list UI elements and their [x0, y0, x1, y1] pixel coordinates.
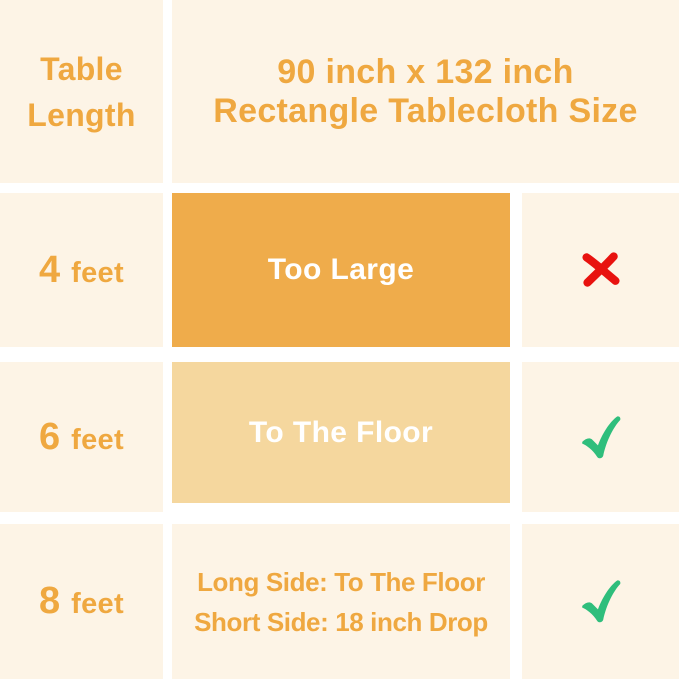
too-large-label: Too Large: [268, 253, 414, 287]
size-title-line2: Rectangle Tablecloth Size: [213, 92, 637, 131]
row-4ft-length-cell: 4 feet: [0, 193, 163, 347]
too-large-box: Too Large: [172, 193, 510, 347]
row-8ft-fit-line1: Long Side: To The Floor: [197, 562, 485, 602]
to-the-floor-box: To The Floor: [172, 362, 510, 503]
row-6ft-length: 6 feet: [39, 416, 124, 459]
row-4ft-verdict-cell: [522, 193, 679, 347]
row-8ft-fit-line2: Short Side: 18 inch Drop: [194, 602, 488, 642]
table-length-label: Table Length: [12, 46, 152, 138]
row-6ft-length-unit: feet: [71, 424, 124, 457]
row-8ft-verdict-cell: [522, 524, 679, 679]
tablecloth-size-table: Table Length 90 inch x 132 inch Rectangl…: [0, 0, 679, 679]
size-title-line1: 90 inch x 132 inch: [277, 53, 573, 92]
row-4ft-fit-cell: Too Large: [172, 193, 510, 347]
cross-icon: [580, 251, 622, 289]
row-4ft-length-number: 4: [39, 249, 60, 292]
row-8ft-length-number: 8: [39, 580, 60, 623]
check-icon: [577, 411, 625, 464]
header-table-length-cell: Table Length: [0, 0, 163, 183]
row-6ft-length-number: 6: [39, 416, 60, 459]
row-6ft-length-cell: 6 feet: [0, 362, 163, 512]
header-size-title-cell: 90 inch x 132 inch Rectangle Tablecloth …: [172, 0, 679, 183]
row-8ft-fit-cell: Long Side: To The Floor Short Side: 18 i…: [172, 524, 510, 679]
row-6ft-fit-cell: To The Floor: [172, 362, 510, 512]
row-8ft-length-unit: feet: [71, 588, 124, 621]
check-icon: [577, 575, 625, 628]
row-4ft-length: 4 feet: [39, 249, 124, 292]
to-the-floor-label: To The Floor: [249, 416, 433, 450]
row-6ft-verdict-cell: [522, 362, 679, 512]
row-4ft-length-unit: feet: [71, 257, 124, 290]
row-8ft-length-cell: 8 feet: [0, 524, 163, 679]
row-8ft-length: 8 feet: [39, 580, 124, 623]
